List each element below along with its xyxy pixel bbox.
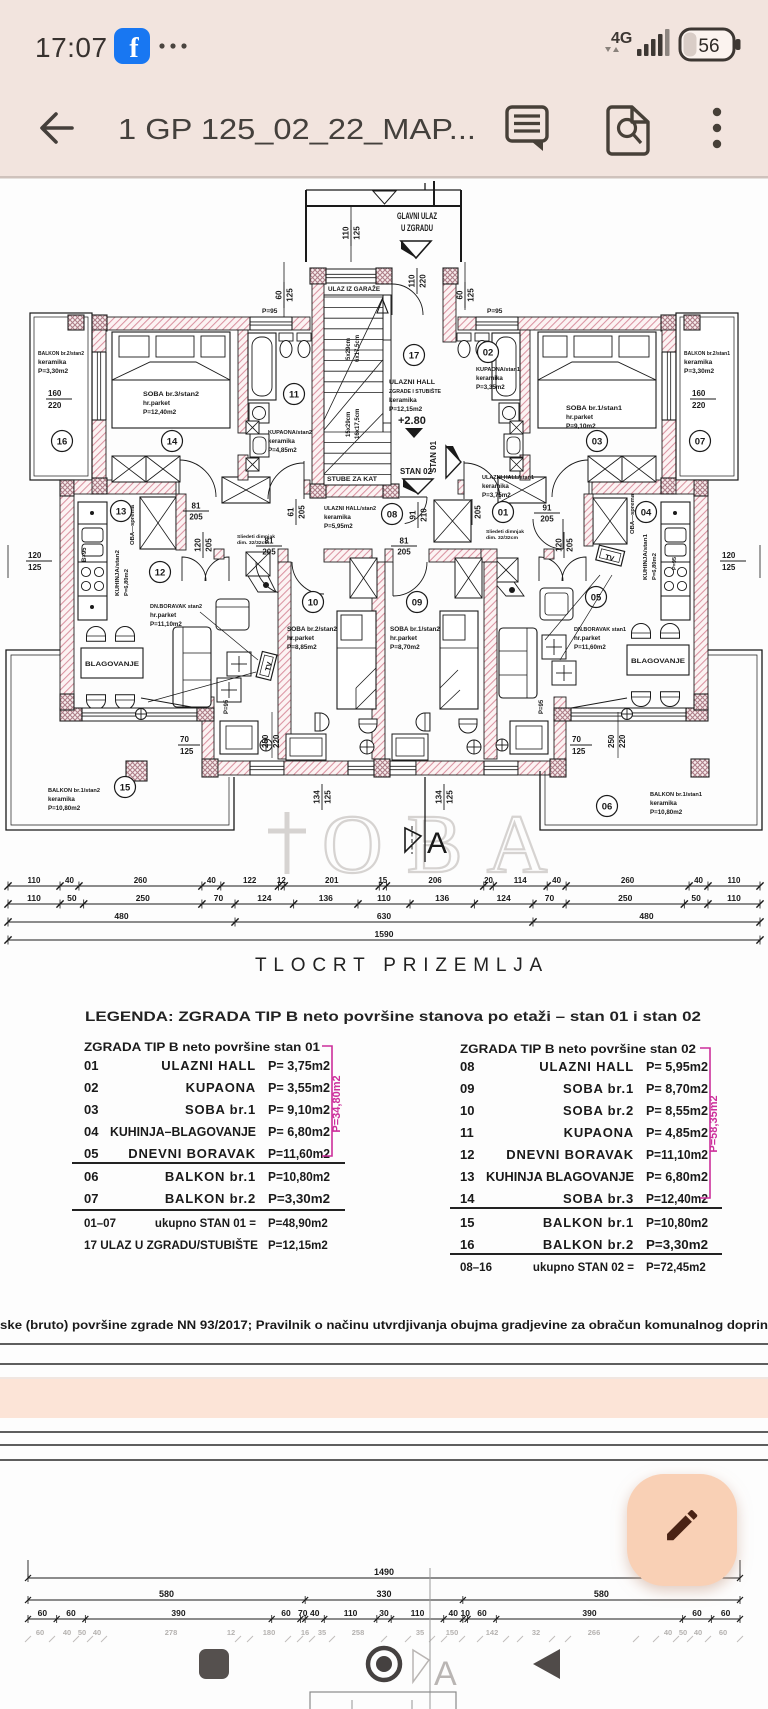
svg-text:hr.parket: hr.parket [574,635,600,642]
svg-text:14: 14 [167,436,178,447]
svg-text:10: 10 [461,1608,471,1618]
svg-text:P= 3,75m2: P= 3,75m2 [268,1058,330,1073]
svg-text:BALKON br.2/stan1: BALKON br.2/stan1 [684,351,731,357]
svg-text:hr.parket: hr.parket [390,635,418,642]
svg-text:205: 205 [189,513,203,522]
svg-text:11: 11 [289,389,300,400]
svg-text:P=12,15m2: P=12,15m2 [389,406,423,413]
svg-text:STUBE ZA KAT: STUBE ZA KAT [327,476,377,483]
svg-text:P=6,80m2: P=6,80m2 [652,553,658,580]
svg-text:35: 35 [416,1628,424,1637]
svg-text:60: 60 [275,290,284,299]
svg-text:16x17,5cm: 16x17,5cm [355,409,361,439]
svg-text:BALKON br.2: BALKON br.2 [543,1237,634,1252]
svg-text:40: 40 [664,1628,672,1637]
svg-text:DN.BORAVAK stan2: DN.BORAVAK stan2 [150,604,202,610]
svg-text:125: 125 [180,747,194,756]
svg-text:40: 40 [449,1608,459,1618]
svg-text:205: 205 [566,538,575,552]
svg-text:hr.parket: hr.parket [566,414,594,421]
svg-text:ZGRADE I STUBIŠTE: ZGRADE I STUBIŠTE [389,387,441,395]
svg-text:BLAGOVANJE: BLAGOVANJE [85,661,139,668]
svg-text:P= 4,85m2: P= 4,85m2 [646,1125,708,1140]
svg-text:BALKON br.2: BALKON br.2 [165,1191,256,1206]
svg-text:A: A [427,827,447,860]
svg-text:160: 160 [48,389,62,398]
svg-text:ZGRADA TIP B neto površine sta: ZGRADA TIP B neto površine stan 02 [460,1044,696,1056]
svg-text:06: 06 [602,801,613,812]
svg-text:02: 02 [483,347,494,358]
svg-text:12: 12 [460,1147,474,1162]
svg-text:260: 260 [134,876,148,885]
svg-text:P=95: P=95 [539,699,545,714]
svg-text:hr.parket: hr.parket [150,612,176,619]
svg-text:40: 40 [552,876,561,885]
svg-text:04: 04 [641,507,652,518]
svg-text:201: 201 [325,876,339,885]
svg-text:SOBA br.2/stan2: SOBA br.2/stan2 [287,626,338,633]
svg-text:06: 06 [84,1169,98,1184]
svg-text:205: 205 [205,538,214,552]
svg-text:01–07: 01–07 [84,1218,116,1230]
svg-text:110: 110 [28,876,41,885]
svg-text:110: 110 [728,876,741,885]
svg-text:P=4,85m2: P=4,85m2 [268,447,297,454]
svg-text:P=12,40m2: P=12,40m2 [646,1191,708,1206]
svg-text:110: 110 [377,893,391,903]
svg-text:480: 480 [639,911,653,921]
svg-text:60: 60 [719,1628,727,1637]
svg-text:13: 13 [460,1169,474,1184]
svg-text:P=3,30m2: P=3,30m2 [646,1237,708,1252]
svg-text:17 ULAZ U ZGRADU/STUBIŠTE: 17 ULAZ U ZGRADU/STUBIŠTE [84,1239,258,1252]
svg-text:125: 125 [28,563,42,572]
svg-text:110: 110 [411,1608,425,1618]
svg-text:11: 11 [460,1125,474,1140]
svg-text:30: 30 [379,1608,389,1618]
svg-text:125: 125 [722,563,736,572]
svg-text:TLOCRT PRIZEMLJA: TLOCRT PRIZEMLJA [255,954,549,976]
svg-text:134: 134 [435,790,444,804]
svg-text:250: 250 [618,893,632,903]
svg-text:KUPAONA: KUPAONA [186,1080,256,1095]
svg-text:08–16: 08–16 [460,1262,492,1274]
svg-text:40: 40 [93,1628,101,1637]
svg-text:P=12,40m2: P=12,40m2 [143,409,177,416]
svg-text:hr.parket: hr.parket [143,400,171,407]
svg-text:17: 17 [409,350,420,361]
svg-text:01: 01 [498,507,509,518]
svg-text:206: 206 [428,876,442,885]
svg-text:P=5,95m2: P=5,95m2 [324,523,353,530]
svg-text:124: 124 [497,893,511,903]
svg-text:60: 60 [38,1608,48,1618]
svg-text:ULAZ IZ GARAŽE: ULAZ IZ GARAŽE [328,285,380,293]
svg-text:120: 120 [194,538,203,552]
svg-text:220: 220 [272,734,281,748]
svg-text:70: 70 [298,1608,308,1618]
svg-text:P=3,30m2: P=3,30m2 [684,368,715,375]
svg-text:KUPAONA/stan1: KUPAONA/stan1 [476,367,520,373]
svg-text:60: 60 [36,1628,44,1637]
svg-text:12: 12 [155,567,166,578]
svg-text:ULAZNI HALL: ULAZNI HALL [161,1058,256,1073]
svg-text:110: 110 [342,226,351,239]
svg-text:U ZGRADU: U ZGRADU [401,223,433,233]
svg-text:60: 60 [721,1608,731,1618]
svg-text:07: 07 [84,1191,98,1206]
svg-text:266: 266 [588,1628,601,1637]
svg-text:81: 81 [400,537,409,546]
svg-text:142: 142 [486,1628,499,1637]
svg-text:220: 220 [419,274,428,288]
svg-text:SOBA br.1: SOBA br.1 [185,1102,256,1117]
svg-text:STAN 01: STAN 01 [428,441,438,473]
svg-text:16: 16 [301,1628,309,1637]
svg-text:keramika: keramika [48,796,75,803]
svg-text:P=95: P=95 [262,308,278,315]
svg-text:220: 220 [692,401,706,410]
svg-text:P=10,80m2: P=10,80m2 [650,809,683,816]
svg-text:32: 32 [532,1628,540,1637]
svg-text:BALKON br.1/stan2: BALKON br.1/stan2 [48,788,100,794]
svg-text:40: 40 [63,1628,71,1637]
svg-text:180: 180 [263,1628,276,1637]
svg-text:hr.parket: hr.parket [287,635,315,642]
svg-text:KUHINJA/stan1: KUHINJA/stan1 [643,533,649,580]
svg-text:P= 8,70m2: P= 8,70m2 [646,1081,708,1096]
svg-text:480: 480 [114,911,128,921]
svg-text:keramika: keramika [482,483,509,490]
svg-text:136: 136 [435,893,449,903]
svg-text:08: 08 [387,509,398,520]
svg-text:P=10,80m2: P=10,80m2 [646,1215,708,1230]
svg-text:258: 258 [352,1628,365,1637]
svg-text:P=34,80m2: P=34,80m2 [331,1075,343,1132]
svg-text:ULAZNI HALL: ULAZNI HALL [389,379,435,386]
svg-text:40: 40 [694,1628,702,1637]
svg-text:keramika: keramika [324,514,351,521]
svg-text:250: 250 [136,893,150,903]
svg-text:60: 60 [477,1608,487,1618]
svg-text:keramika: keramika [389,397,417,404]
svg-text:114: 114 [514,876,527,885]
svg-text:35: 35 [318,1628,326,1637]
svg-text:390: 390 [171,1608,185,1618]
svg-text:P=11,10m2: P=11,10m2 [646,1147,708,1162]
svg-text:P=11,60m2: P=11,60m2 [574,644,606,651]
svg-text:KUHINJA/stan2: KUHINJA/stan2 [115,550,121,596]
svg-text:12: 12 [277,876,286,885]
svg-text:Sliedeti dimnjak: Sliedeti dimnjak [486,529,524,535]
svg-text:BALKON br.1: BALKON br.1 [543,1215,634,1230]
svg-text:13: 13 [116,506,127,517]
svg-text:4G: 4G [611,30,632,47]
svg-text:1 GP 125_02_22_MAP...: 1 GP 125_02_22_MAP... [118,114,476,146]
svg-text:15: 15 [460,1215,474,1230]
svg-text:P=10,80m2: P=10,80m2 [48,805,81,812]
svg-text:250: 250 [261,734,270,748]
svg-text:KUPAONA/stan2: KUPAONA/stan2 [268,430,312,436]
svg-text:keramika: keramika [38,359,67,366]
svg-text:278: 278 [165,1628,178,1637]
svg-text:40: 40 [694,876,703,885]
svg-text:KUHINJA–BLAGOVANJE: KUHINJA–BLAGOVANJE [110,1124,256,1139]
svg-text:580: 580 [159,1589,174,1599]
svg-text:P=58,35m2: P=58,35m2 [708,1095,720,1152]
svg-text:125: 125 [324,790,333,804]
svg-text:SOBA br.2: SOBA br.2 [563,1103,634,1118]
svg-text:+2.80: +2.80 [398,415,426,427]
svg-text:P=10,80m2: P=10,80m2 [268,1169,330,1184]
svg-text:01: 01 [84,1058,98,1073]
svg-text:08: 08 [460,1059,474,1074]
svg-text:keramika: keramika [476,375,503,382]
svg-text:P= 6,80m2: P= 6,80m2 [268,1124,330,1139]
svg-text:70: 70 [545,893,555,903]
svg-text:ukupno STAN 02 =: ukupno STAN 02 = [533,1262,634,1274]
svg-text:ULAZNI HALL/stan1: ULAZNI HALL/stan1 [482,475,535,481]
svg-text:P=8,85m2: P=8,85m2 [287,644,317,651]
svg-text:205: 205 [397,548,411,557]
svg-text:125: 125 [286,288,295,302]
svg-text:120: 120 [28,551,42,560]
svg-text:110: 110 [344,1608,358,1618]
svg-text:110: 110 [408,274,417,287]
svg-text:15x29cm: 15x29cm [346,412,352,437]
svg-text:390: 390 [582,1608,596,1618]
svg-text:60: 60 [692,1608,702,1618]
svg-text:P=3,35m2: P=3,35m2 [476,384,505,391]
svg-text:BALKON br.1/stan1: BALKON br.1/stan1 [650,792,703,798]
svg-text:P=95: P=95 [224,699,230,714]
svg-text:P=12,15m2: P=12,15m2 [268,1240,328,1252]
svg-text:03: 03 [84,1102,98,1117]
svg-text:20: 20 [484,876,493,885]
svg-text:160: 160 [692,389,706,398]
svg-text:12: 12 [227,1628,235,1637]
svg-text:SOBA br.3: SOBA br.3 [563,1191,634,1206]
svg-text:81: 81 [265,537,274,546]
svg-text:05: 05 [84,1146,98,1161]
svg-text:16: 16 [460,1237,474,1252]
svg-text:SOBA br.1/stan2: SOBA br.1/stan2 [390,626,441,633]
svg-text:ULAZNI HALL/stan2: ULAZNI HALL/stan2 [324,506,376,512]
svg-text:P=95: P=95 [672,557,678,570]
svg-text:keramika: keramika [650,800,677,807]
svg-text:136: 136 [319,893,333,903]
svg-text:81: 81 [192,502,201,511]
svg-text:SOBA br.1/stan1: SOBA br.1/stan1 [566,405,623,412]
svg-text:250: 250 [607,734,616,748]
svg-text:P=3,30m2: P=3,30m2 [268,1191,330,1206]
svg-text:07: 07 [695,436,706,447]
svg-text:50: 50 [679,1628,687,1637]
svg-text:BALKON br.1: BALKON br.1 [165,1169,256,1184]
svg-text:56: 56 [698,36,719,57]
svg-text:DNEVNI BORAVAK: DNEVNI BORAVAK [506,1147,634,1162]
svg-text:ske (bruto) površine zgrade NN: ske (bruto) površine zgrade NN 93/2017; … [0,1318,768,1332]
svg-text:SOBA br.1: SOBA br.1 [563,1081,634,1096]
svg-text:P=72,45m2: P=72,45m2 [646,1262,706,1274]
svg-text:B=95: B=95 [82,547,88,562]
svg-text:205: 205 [262,548,276,557]
svg-text:15: 15 [378,876,387,885]
svg-text:15: 15 [120,782,131,793]
svg-text:580: 580 [594,1589,609,1599]
svg-text:91: 91 [409,510,418,519]
svg-text:10: 10 [460,1103,474,1118]
svg-text:110: 110 [727,893,741,903]
svg-text:P=3,30m2: P=3,30m2 [38,368,69,375]
svg-text:BLAGOVANJE: BLAGOVANJE [631,658,685,665]
svg-text:205: 205 [474,505,483,519]
svg-text:P= 6,80m2: P= 6,80m2 [646,1169,708,1184]
svg-text:50: 50 [67,893,77,903]
svg-text:10: 10 [308,597,319,608]
svg-text:09: 09 [412,597,423,608]
svg-text:50: 50 [691,893,701,903]
svg-text:OBA—sprema: OBA—sprema [130,504,136,545]
svg-text:P= 5,95m2: P= 5,95m2 [646,1059,708,1074]
svg-text:keramika: keramika [684,359,713,366]
svg-text:122: 122 [243,876,257,885]
svg-text:02: 02 [84,1080,98,1095]
svg-text:120: 120 [722,551,736,560]
svg-text:P=48,90m2: P=48,90m2 [268,1218,328,1230]
svg-text:125: 125 [467,288,476,302]
svg-text:ukupno STAN 01 =: ukupno STAN 01 = [155,1218,256,1230]
svg-text:keramika: keramika [268,438,295,445]
svg-text:40: 40 [207,876,216,885]
svg-text:P= 8,55m2: P= 8,55m2 [646,1103,708,1118]
svg-text:f: f [129,33,139,64]
svg-text:DN.BORAVAK stan1: DN.BORAVAK stan1 [574,627,627,633]
svg-text:P=3,75m2: P=3,75m2 [482,492,511,499]
svg-text:P=11,60m2: P=11,60m2 [268,1146,330,1161]
svg-text:SOBA br.3/stan2: SOBA br.3/stan2 [143,391,200,398]
svg-text:220: 220 [48,401,62,410]
svg-text:120: 120 [555,538,564,552]
svg-text:ZGRADA TIP B neto površine sta: ZGRADA TIP B neto površine stan 01 [84,1042,321,1054]
svg-text:134: 134 [313,790,322,804]
svg-text:04: 04 [84,1124,99,1139]
svg-text:60: 60 [66,1608,76,1618]
svg-text:P= 9,10m2: P= 9,10m2 [268,1102,330,1117]
svg-text:03: 03 [592,436,603,447]
svg-text:330: 330 [376,1589,391,1599]
svg-text:17:07: 17:07 [35,32,108,63]
svg-text:P=9,10m2: P=9,10m2 [566,423,596,430]
svg-text:125: 125 [446,790,455,804]
svg-text:16: 16 [57,436,68,447]
svg-text:60: 60 [281,1608,291,1618]
svg-text:KUHINJA BLAGOVANJE: KUHINJA BLAGOVANJE [486,1169,634,1184]
svg-text:KUPAONA: KUPAONA [564,1125,634,1140]
svg-text:110: 110 [27,893,41,903]
svg-text:A: A [434,1655,457,1693]
svg-text:1590: 1590 [375,929,394,939]
svg-text:70: 70 [572,735,581,744]
svg-text:150: 150 [446,1628,459,1637]
svg-text:40: 40 [310,1608,320,1618]
svg-text:630: 630 [377,911,391,921]
svg-text:124: 124 [257,893,271,903]
svg-text:P=95: P=95 [487,308,503,315]
svg-text:dim. 32/32cm: dim. 32/32cm [486,535,518,541]
svg-text:220: 220 [618,734,627,748]
svg-text:LEGENDA: ZGRADA TIP B neto pov: LEGENDA: ZGRADA TIP B neto površine stan… [85,1009,701,1024]
svg-text:5x29cm: 5x29cm [346,338,352,360]
svg-text:DNEVNI BORAVAK: DNEVNI BORAVAK [128,1146,256,1161]
svg-text:70: 70 [180,735,189,744]
svg-text:61: 61 [287,507,296,516]
svg-text:P=6,80m2: P=6,80m2 [124,569,130,596]
svg-text:1490: 1490 [374,1567,394,1577]
svg-text:OBA—sprema: OBA—sprema [630,493,636,534]
svg-text:P= 3,55m2: P= 3,55m2 [268,1080,330,1095]
svg-text:260: 260 [621,876,635,885]
svg-text:GLAVNI ULAZ: GLAVNI ULAZ [397,211,437,221]
svg-text:91: 91 [543,504,552,513]
svg-text:BALKON br.2/stan2: BALKON br.2/stan2 [38,351,84,357]
svg-text:09: 09 [460,1081,474,1096]
svg-text:P=8,70m2: P=8,70m2 [390,644,420,651]
svg-text:70: 70 [214,893,224,903]
svg-text:205: 205 [298,505,307,519]
svg-text:14: 14 [460,1191,475,1206]
svg-text:40: 40 [65,876,74,885]
svg-text:60: 60 [456,290,465,299]
svg-text:205: 205 [540,515,554,524]
svg-text:6x17,5cm: 6x17,5cm [355,335,361,362]
svg-text:ULAZNI HALL: ULAZNI HALL [539,1059,634,1074]
svg-text:125: 125 [572,747,586,756]
svg-text:50: 50 [78,1628,86,1637]
svg-text:125: 125 [353,226,362,240]
